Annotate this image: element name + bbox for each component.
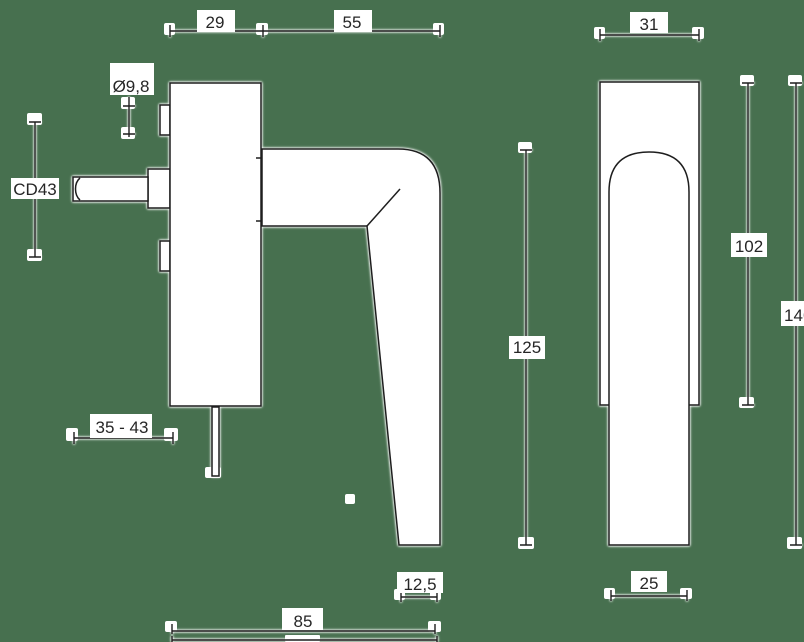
front-view — [600, 82, 699, 545]
halo-blob — [121, 97, 135, 109]
cutoff-text-patch — [285, 635, 320, 642]
dim-handle-height-label: 125 — [513, 338, 541, 357]
side-base-plate — [170, 83, 261, 406]
dim-spindle-length-range-label: 35 - 43 — [96, 418, 149, 437]
dim-plate-width-label: 31 — [640, 15, 659, 34]
dim-plate-depth-label: 29 — [206, 13, 225, 32]
halo-blob — [692, 27, 704, 39]
halo-blob — [680, 588, 692, 599]
dim-total-depth-label: 85 — [294, 612, 313, 631]
fixing-tab-bottom — [160, 241, 170, 271]
dim-lever-reach-label: 55 — [343, 13, 362, 32]
technical-drawing: 29 55 31 Ø9,8 CD43 35 - 43 125 12,5 85 1… — [0, 0, 804, 642]
halo-blob — [433, 23, 444, 35]
dim-center-distance-label: CD43 — [13, 180, 56, 199]
halo-blob — [518, 142, 532, 153]
halo-blob — [256, 23, 268, 35]
halo-blob — [740, 75, 754, 86]
locking-pin — [212, 407, 219, 476]
halo-blob — [739, 397, 754, 408]
dim-grip-bottom-depth-label: 12,5 — [403, 575, 436, 594]
dim-total-height-label: 146 — [784, 306, 804, 325]
halo-blob — [604, 588, 615, 599]
halo-blob — [66, 428, 78, 441]
halo-blob — [787, 537, 802, 549]
spindle-collar — [148, 169, 170, 208]
halo-blob — [345, 494, 355, 504]
dim-spindle-diameter-label: Ø9,8 — [113, 77, 150, 96]
spindle-shaft — [73, 177, 148, 201]
front-handle-grip — [609, 152, 689, 545]
dim-plate-height-label: 102 — [735, 237, 763, 256]
fixing-tab-top — [160, 105, 170, 135]
halo-blob — [121, 127, 135, 139]
halo-blob — [164, 428, 178, 441]
halo-blob — [788, 75, 802, 86]
dim-grip-width-label: 25 — [640, 574, 659, 593]
